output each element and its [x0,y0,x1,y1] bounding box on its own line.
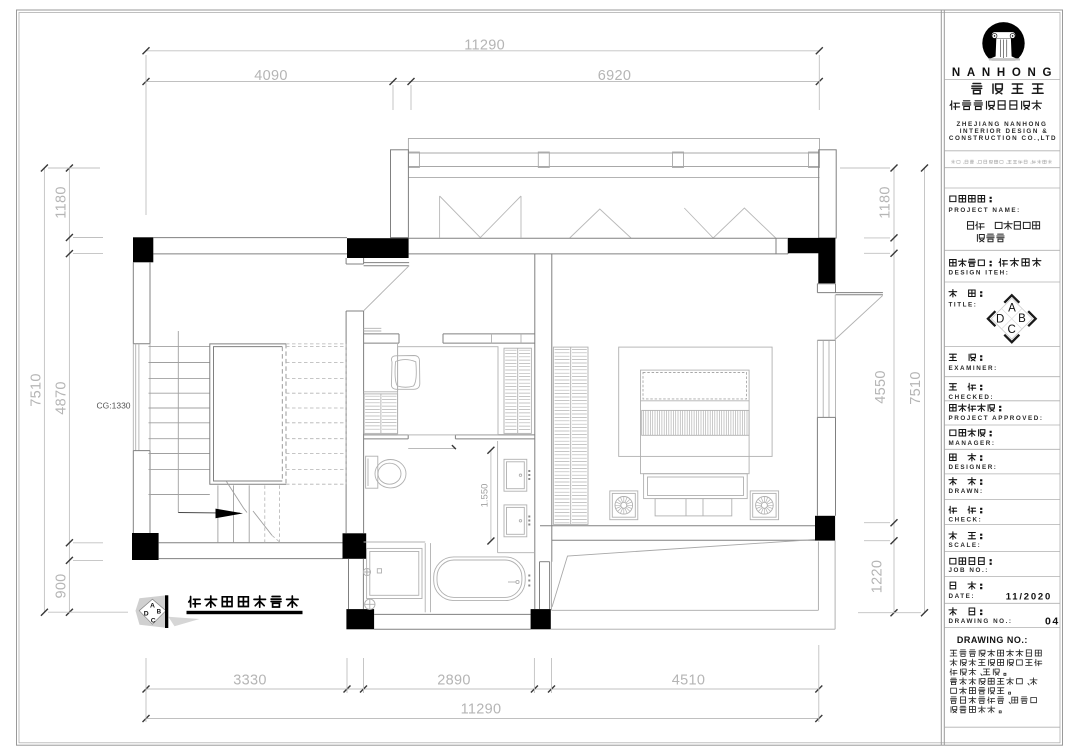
svg-text:B: B [157,609,162,616]
svg-text:DRAWN:: DRAWN: [949,488,984,495]
svg-text:C: C [1007,324,1015,336]
svg-text:JOB NO.:: JOB NO.: [949,567,989,574]
svg-text:DRAWING NO.:: DRAWING NO.: [957,635,1028,645]
svg-text:PROJECT NAME:: PROJECT NAME: [949,207,1021,214]
svg-text:11290: 11290 [464,37,505,53]
svg-text:1180: 1180 [878,186,894,218]
svg-text:6920: 6920 [598,68,631,84]
svg-text:SCALE:: SCALE: [949,542,982,549]
svg-text:D: D [144,610,149,617]
svg-text:ZHEJIANG NANHONG: ZHEJIANG NANHONG [957,121,1048,128]
svg-text:MANAGER:: MANAGER: [949,440,996,447]
svg-text:2890: 2890 [437,672,470,688]
svg-text:CHECKED:: CHECKED: [949,394,995,401]
svg-text:4550: 4550 [873,370,889,403]
svg-text:04: 04 [1045,616,1060,628]
svg-text:TITLE:: TITLE: [949,301,978,308]
svg-text:DRAWING NO.:: DRAWING NO.: [949,618,1013,625]
svg-text:DATE:: DATE: [949,593,976,600]
svg-text:INTERIOR DESIGN &: INTERIOR DESIGN & [960,128,1049,135]
svg-text:4870: 4870 [54,381,70,414]
svg-text:900: 900 [54,573,70,598]
svg-text:7510: 7510 [29,373,45,406]
svg-text:D: D [996,314,1004,326]
svg-text:PROJECT APPROVED:: PROJECT APPROVED: [949,415,1044,422]
svg-text:DESIGNER:: DESIGNER: [949,464,998,471]
svg-text:3330: 3330 [233,672,266,688]
svg-text:NANHONG: NANHONG [952,67,1058,79]
svg-text:A: A [150,603,155,610]
svg-text:4090: 4090 [254,68,287,84]
svg-text:1220: 1220 [870,560,886,593]
svg-text:11/2020: 11/2020 [1006,591,1052,602]
svg-text:1180: 1180 [54,186,70,218]
svg-text:CONSTRUCTION CO.,LTD: CONSTRUCTION CO.,LTD [949,135,1057,142]
svg-text:C: C [151,618,156,625]
svg-text:DESIGN ITEH:: DESIGN ITEH: [949,270,1010,277]
svg-text:11290: 11290 [461,702,502,718]
svg-text:CG:1330: CG:1330 [97,401,131,411]
svg-text:1.550: 1.550 [480,484,491,508]
svg-text:A: A [1008,302,1016,314]
svg-text:4510: 4510 [672,672,705,688]
svg-text:CHECK:: CHECK: [949,517,983,524]
svg-text:7510: 7510 [908,371,924,404]
svg-text:B: B [1018,313,1026,325]
svg-text:EXAMINER:: EXAMINER: [949,365,998,372]
